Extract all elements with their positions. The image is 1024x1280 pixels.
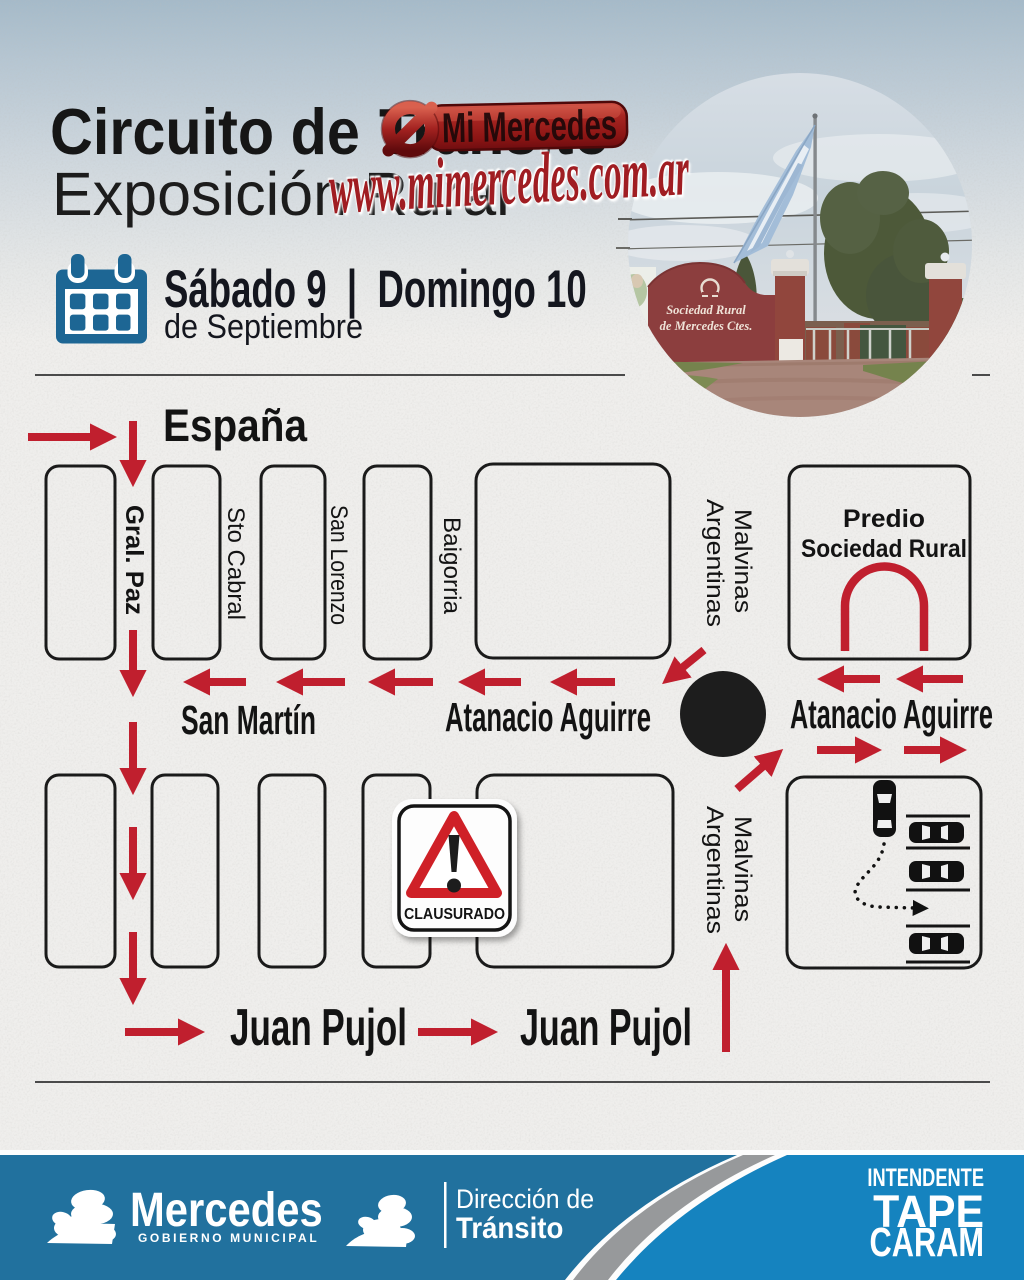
svg-text:Juan Pujol: Juan Pujol <box>520 999 692 1057</box>
svg-text:de Mercedes Ctes.: de Mercedes Ctes. <box>660 319 753 333</box>
svg-text:Gral. Paz: Gral. Paz <box>120 505 148 615</box>
svg-text:España: España <box>163 400 308 451</box>
svg-text:Juan Pujol: Juan Pujol <box>230 999 407 1057</box>
svg-text:Malvinas: Malvinas <box>729 816 756 922</box>
svg-text:Predio: Predio <box>843 505 925 533</box>
svg-text:Sto Cabral: Sto Cabral <box>222 507 249 620</box>
svg-text:Atanacio Aguirre: Atanacio Aguirre <box>445 694 651 740</box>
svg-text:San Lorenzo: San Lorenzo <box>325 505 352 625</box>
svg-text:Argentinas: Argentinas <box>701 806 728 934</box>
svg-text:Malvinas: Malvinas <box>729 509 756 613</box>
svg-text:Baigorria: Baigorria <box>438 517 465 615</box>
svg-text:Sociedad Rural: Sociedad Rural <box>666 303 746 317</box>
svg-text:San Martín: San Martín <box>181 697 316 743</box>
svg-text:Sociedad Rural: Sociedad Rural <box>801 535 967 563</box>
svg-text:Argentinas: Argentinas <box>701 499 728 627</box>
svg-text:CLAUSURADO: CLAUSURADO <box>404 906 505 923</box>
svg-text:Atanacio Aguirre: Atanacio Aguirre <box>790 691 993 737</box>
